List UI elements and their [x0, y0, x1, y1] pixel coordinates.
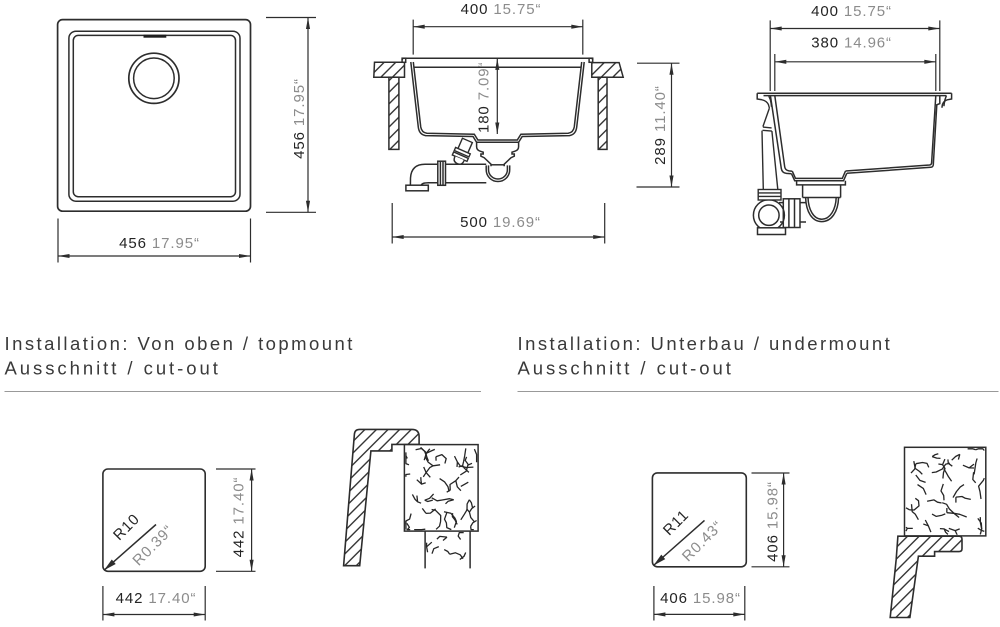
svg-text:406 15.98“: 406 15.98“ — [765, 481, 782, 562]
svg-text:406 15.98“: 406 15.98“ — [660, 590, 741, 607]
svg-text:400 15.75“: 400 15.75“ — [811, 3, 892, 20]
svg-text:R11: R11 — [660, 507, 693, 540]
svg-text:Installation: Von oben / topmo: Installation: Von oben / topmount — [5, 333, 355, 354]
svg-text:400 15.75“: 400 15.75“ — [461, 1, 542, 18]
svg-text:Ausschnitt / cut-out: Ausschnitt / cut-out — [5, 358, 221, 379]
svg-text:442 17.40“: 442 17.40“ — [116, 590, 197, 607]
svg-text:442 17.40“: 442 17.40“ — [231, 477, 248, 558]
svg-text:456 17.95“: 456 17.95“ — [119, 235, 200, 252]
svg-text:180 7.09“: 180 7.09“ — [476, 62, 493, 134]
svg-text:289 11.40“: 289 11.40“ — [652, 85, 669, 165]
svg-text:500 19.69“: 500 19.69“ — [460, 214, 541, 231]
svg-text:456 17.95“: 456 17.95“ — [291, 78, 308, 159]
svg-text:Ausschnitt / cut-out: Ausschnitt / cut-out — [518, 358, 734, 379]
svg-text:Installation: Unterbau / under: Installation: Unterbau / undermount — [518, 333, 893, 354]
svg-text:R10: R10 — [110, 511, 143, 544]
svg-text:380 14.96“: 380 14.96“ — [811, 35, 892, 52]
